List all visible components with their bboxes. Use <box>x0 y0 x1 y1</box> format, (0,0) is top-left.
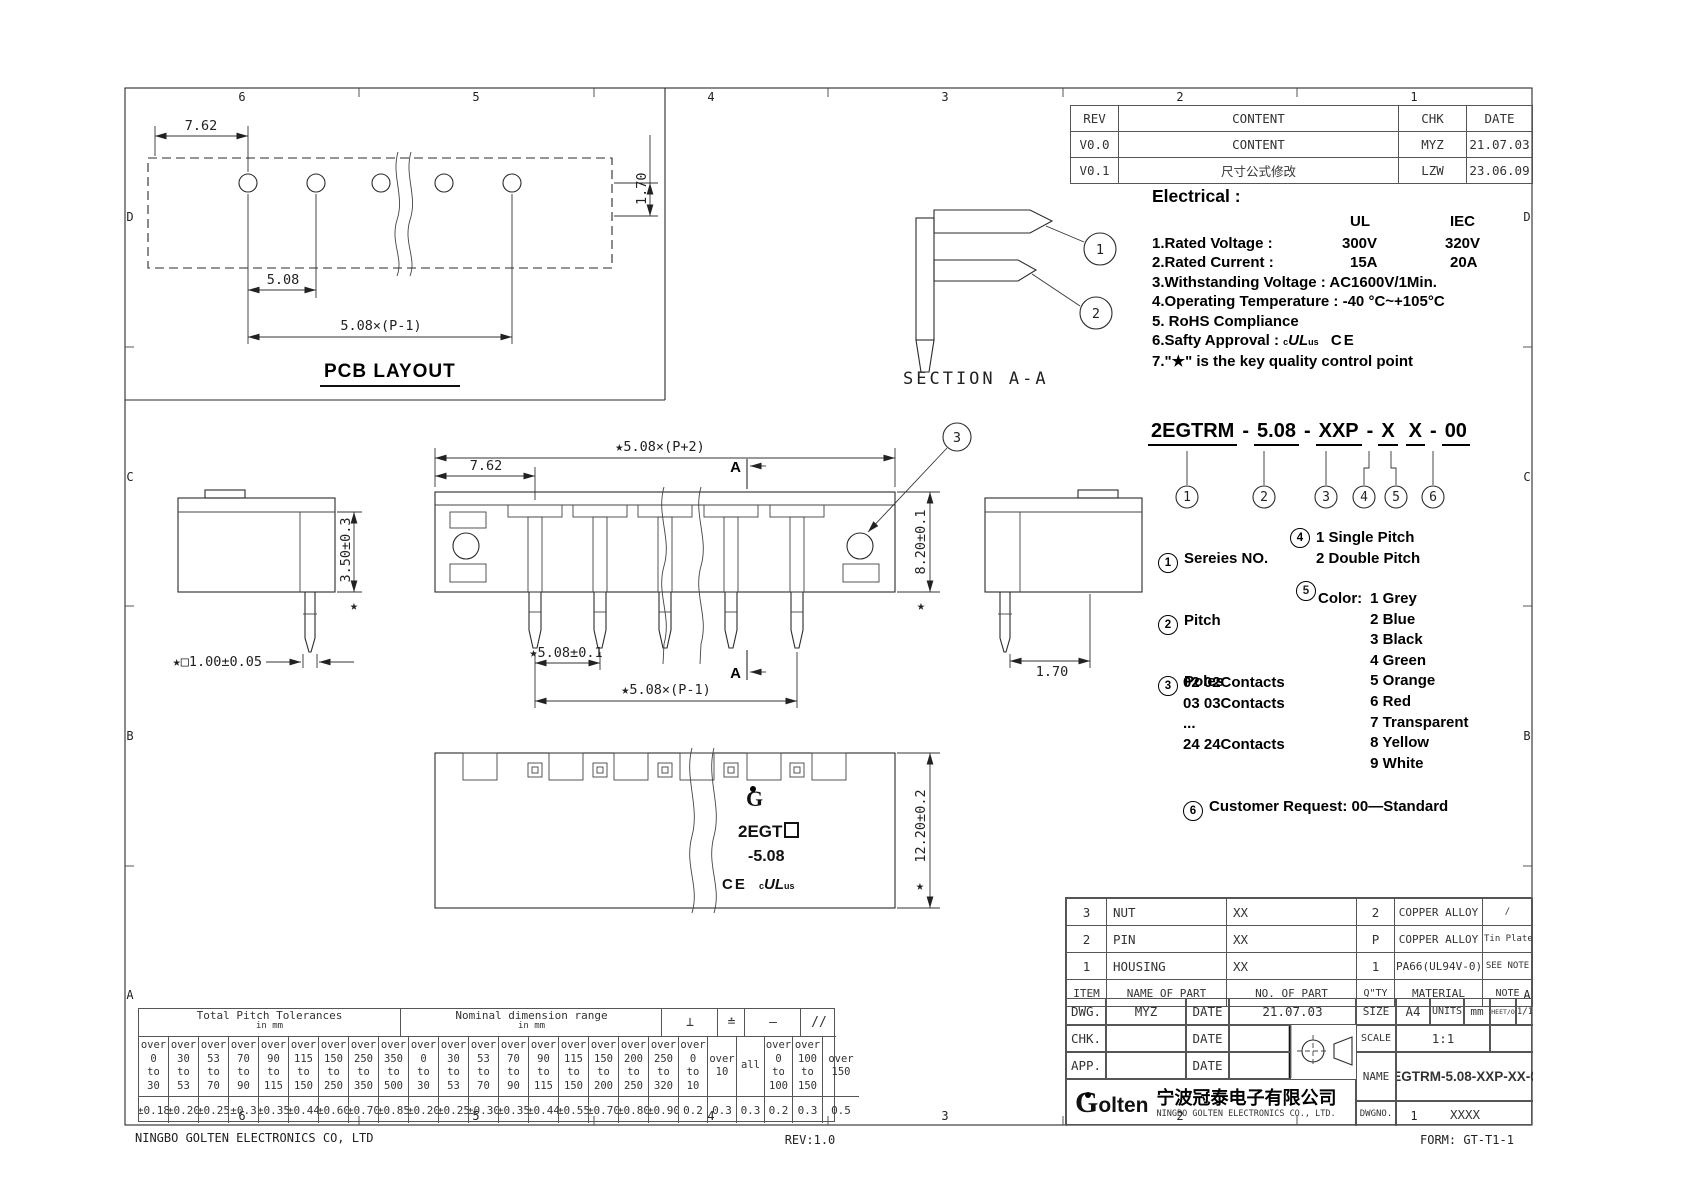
svg-text:5: 5 <box>1392 490 1400 505</box>
scale-value: 1:1 <box>1396 1025 1490 1052</box>
svg-text:7.62: 7.62 <box>470 458 503 474</box>
drawing-sheet: 6 5 4 3 2 1 6 5 4 3 2 1 D C B A D C B A … <box>0 0 1684 1190</box>
electrical-title: Electrical : <box>1152 186 1241 207</box>
svg-text:1.70: 1.70 <box>634 172 650 205</box>
svg-text:C: C <box>126 470 133 484</box>
section-aa-view: 1 2 SECTION A-A <box>903 210 1116 389</box>
svg-text:★5.08×(P-1): ★5.08×(P-1) <box>621 682 710 698</box>
svg-text:NINGBO GOLTEN ELECTRONICS CO,: NINGBO GOLTEN ELECTRONICS CO, LTD <box>135 1131 373 1145</box>
legend-marker-6: 6 <box>1183 801 1203 821</box>
revision-table: REV CONTENT CHK DATE V0.0 CONTENT MYZ 21… <box>1070 105 1533 184</box>
svg-text:3: 3 <box>941 1109 948 1123</box>
svg-text:★5.08±0.1: ★5.08±0.1 <box>529 645 602 661</box>
svg-text:3.50±0.3: 3.50±0.3 <box>338 517 354 582</box>
svg-text:★5.08×(P+2): ★5.08×(P+2) <box>615 439 704 455</box>
dwg-date: 21.07.03 <box>1229 998 1356 1025</box>
molded-logo: G <box>746 786 763 812</box>
svg-text:1: 1 <box>1410 90 1417 104</box>
revision-row: V0.0 CONTENT MYZ 21.07.03 <box>1071 132 1533 158</box>
group2-title: Nominal dimension range in mm <box>400 1009 662 1036</box>
svg-text:A: A <box>730 459 741 476</box>
sheet-value: 1/1 <box>1516 998 1533 1025</box>
svg-text:8.20±0.1: 8.20±0.1 <box>913 509 929 574</box>
connector-right-view: 1.70 <box>985 490 1142 680</box>
pn-pitch: 5.08 <box>1254 420 1299 446</box>
svg-text:5: 5 <box>472 90 479 104</box>
bottom-view-dimensions: 12.20±0.2 ★ <box>897 753 940 908</box>
legend-customer-request: 6Customer Request: 00—Standard <box>1183 776 1448 821</box>
legend-pitch: 2Pitch <box>1158 590 1221 635</box>
svg-text:A: A <box>126 988 134 1002</box>
svg-text:B: B <box>126 729 133 743</box>
section-aa-label: SECTION A-A <box>903 369 1049 389</box>
part-name-value: 2EGTRM-5.08-XXP-XX-00 <box>1396 1052 1533 1101</box>
pn-request: 00 <box>1442 420 1470 446</box>
svg-text:D: D <box>126 210 133 224</box>
svg-text:2: 2 <box>1176 90 1183 104</box>
electrical-specs: Electrical : UL IEC 1.Rated Voltage : 30… <box>1152 186 1547 371</box>
legend-poles-list: 02 02Contacts 03 03Contacts ... 24 24Con… <box>1183 673 1285 755</box>
chk-label: CHK. <box>1066 1025 1106 1052</box>
sheet-size: A4 <box>1396 998 1430 1025</box>
svg-text:A: A <box>730 665 741 682</box>
dwg-label: DWG. <box>1066 998 1106 1025</box>
part-number-leaders: 1 2 3 4 5 6 <box>1176 451 1444 508</box>
ul-column-header: UL <box>1350 213 1370 230</box>
connector-bottom-view: 12.20±0.2 ★ <box>435 748 940 913</box>
pn-color: X <box>1406 420 1425 446</box>
coplanarity-icon: ≐ <box>717 1009 745 1036</box>
legend-marker-3: 3 <box>1158 676 1178 696</box>
parallelism-icon: // <box>800 1009 837 1036</box>
svg-text:7.62: 7.62 <box>185 118 218 134</box>
svg-text:B: B <box>1523 729 1530 743</box>
svg-text:★: ★ <box>917 598 925 614</box>
molded-series: 2EGT <box>738 822 799 842</box>
rev-header: REV <box>1071 106 1119 132</box>
svg-text:6: 6 <box>238 90 245 104</box>
pcb-layout-view: 7.62 5.08 5.08×(P-1) 1.70 <box>148 118 658 344</box>
units-value: mm <box>1464 998 1490 1025</box>
bom-parts-table: 3 NUT XX 2 COPPER ALLOY / 2 PIN XX P COP… <box>1066 898 1533 1007</box>
svg-text:2: 2 <box>1092 306 1100 322</box>
svg-text:3: 3 <box>941 90 948 104</box>
pcb-layout-title: PCB LAYOUT <box>320 361 460 387</box>
bom-row: 2 PIN XX P COPPER ALLOY Tin Plated <box>1067 926 1533 953</box>
perpendicularity-icon: ⊥ <box>661 1009 718 1036</box>
group1-title: Total Pitch Tolerances in mm <box>139 1009 400 1036</box>
svg-text:4: 4 <box>707 90 714 104</box>
pn-poles: XXP <box>1316 420 1362 446</box>
legend-colors: Color: 1 Grey 2 Blue 3 Black 4 Green 5 O… <box>1318 589 1469 774</box>
svg-text:2: 2 <box>1260 490 1268 505</box>
svg-text:1.70: 1.70 <box>1036 664 1069 680</box>
legend-marker-4: 4 <box>1290 528 1310 548</box>
svg-text:4: 4 <box>1360 490 1368 505</box>
revision-header-row: REV CONTENT CHK DATE <box>1071 106 1533 132</box>
right-view-dimensions: 1.70 <box>1010 594 1090 680</box>
svg-text:1: 1 <box>1183 490 1191 505</box>
svg-text:6: 6 <box>1429 490 1437 505</box>
date-header: DATE <box>1467 106 1533 132</box>
straightness-icon: — <box>744 1009 801 1036</box>
chk-header: CHK <box>1399 106 1467 132</box>
svg-text:★: ★ <box>350 598 358 614</box>
pn-type: X <box>1378 420 1397 446</box>
dwgno-value: XXXX <box>1396 1101 1533 1126</box>
app-label: APP. <box>1066 1052 1106 1079</box>
tolerance-columns: over 0 to 30±0.18 over 30 to 53±0.20 ove… <box>139 1036 859 1123</box>
revision-row: V0.1 尺寸公式修改 LZW 23.06.09 <box>1071 158 1533 184</box>
company-name-en: NINGBO GOLTEN ELECTRONICS CO., LTD. <box>1157 1109 1337 1119</box>
ce-mark-icon: CE <box>722 876 747 893</box>
svg-text:12.20±0.2: 12.20±0.2 <box>913 789 929 862</box>
svg-text:REV:1.0: REV:1.0 <box>785 1133 836 1147</box>
molded-pitch: -5.08 <box>748 848 784 866</box>
front-dimensions: ★5.08×(P+2) 7.62 8.20±0.1 ★ ★5.08±0.1 ★5… <box>435 439 940 708</box>
legend-series: 1Sereies NO. <box>1158 528 1268 573</box>
legend-pitch-type: 4 1 Single Pitch 2 Double Pitch <box>1290 528 1420 569</box>
connector-left-view: 3.50±0.3 ★ ★□1.00±0.05 <box>173 490 362 670</box>
svg-text:3: 3 <box>1322 490 1330 505</box>
title-block: 3 NUT XX 2 COPPER ALLOY / 2 PIN XX P COP… <box>1065 897 1532 1125</box>
bom-row: 3 NUT XX 2 COPPER ALLOY / <box>1067 899 1533 926</box>
svg-text:5.08: 5.08 <box>267 272 300 288</box>
iec-column-header: IEC <box>1450 213 1475 230</box>
legend-marker-5: 5 <box>1296 581 1316 601</box>
content-header: CONTENT <box>1119 106 1399 132</box>
safety-approval-line: 6.Safty Approval : cULus CE <box>1152 332 1356 349</box>
placeholder-box-icon <box>784 822 799 838</box>
legend-marker-1: 1 <box>1158 553 1178 573</box>
svg-text:★: ★ <box>916 878 924 894</box>
pn-series: 2EGTRM <box>1148 420 1237 446</box>
molded-cert-marks: CE cULus <box>722 876 795 893</box>
tolerance-table: Total Pitch Tolerances in mm Nominal dim… <box>138 1008 835 1122</box>
golten-logo: Golten <box>1075 1086 1149 1120</box>
svg-text:FORM: GT-T1-1: FORM: GT-T1-1 <box>1420 1133 1514 1147</box>
footer-labels: NINGBO GOLTEN ELECTRONICS CO, LTD REV:1.… <box>135 1131 1514 1147</box>
ce-mark-icon: CE <box>1331 332 1356 349</box>
legend-marker-2: 2 <box>1158 615 1178 635</box>
svg-text:1: 1 <box>1096 242 1104 258</box>
svg-text:C: C <box>1523 470 1530 484</box>
company-block: Golten 宁波冠泰电子有限公司 NINGBO GOLTEN ELECTRON… <box>1066 1079 1356 1126</box>
bom-row: 1 HOUSING XX 1 PA66(UL94V-0) SEE NOTE <box>1067 953 1533 980</box>
company-name-cn: 宁波冠泰电子有限公司 <box>1157 1087 1337 1109</box>
dwg-by: MYZ <box>1106 998 1186 1025</box>
part-number: 2EGTRM-5.08-XXP-XX-00 <box>1148 420 1470 446</box>
svg-text:5.08×(P-1): 5.08×(P-1) <box>340 318 421 334</box>
svg-text:3: 3 <box>953 430 961 446</box>
connector-front-view: A A ★5.08×(P+2) 7.62 8.20±0.1 ★ ★5.08±0.… <box>435 423 971 708</box>
pcb-dimensions: 7.62 5.08 5.08×(P-1) 1.70 <box>155 118 658 344</box>
svg-text:★□1.00±0.05: ★□1.00±0.05 <box>173 654 262 670</box>
tolerance-header-band: Total Pitch Tolerances in mm Nominal dim… <box>139 1009 836 1037</box>
left-view-dimensions: 3.50±0.3 ★ ★□1.00±0.05 <box>173 512 362 670</box>
